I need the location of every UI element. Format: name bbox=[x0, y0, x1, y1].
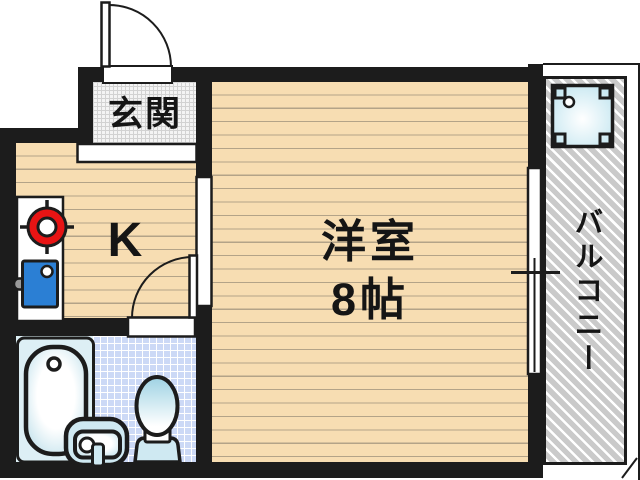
western-room-label: 洋室 8帖 bbox=[250, 213, 490, 328]
kitchen-label: K bbox=[94, 215, 156, 268]
balcony-corner-line bbox=[622, 458, 637, 478]
washbasin-icon bbox=[66, 419, 127, 466]
entrance-doorway bbox=[103, 66, 172, 83]
floor-plan: 玄関 K 洋室 8帖 バルコニー bbox=[0, 0, 640, 480]
bath-doorway bbox=[128, 318, 195, 337]
entrance-door-icon bbox=[102, 3, 172, 68]
balcony-label: バルコニー bbox=[564, 194, 606, 390]
western-room-name: 洋室 bbox=[321, 216, 419, 267]
toilet-icon bbox=[135, 377, 180, 462]
western-room-size: 8帖 bbox=[331, 274, 409, 325]
genkan-step bbox=[78, 144, 197, 162]
entrance-label: 玄関 bbox=[93, 96, 197, 135]
sliding-window-icon bbox=[511, 168, 560, 374]
kitchen-opening bbox=[197, 177, 212, 306]
washing-machine-pan-icon bbox=[553, 86, 613, 147]
